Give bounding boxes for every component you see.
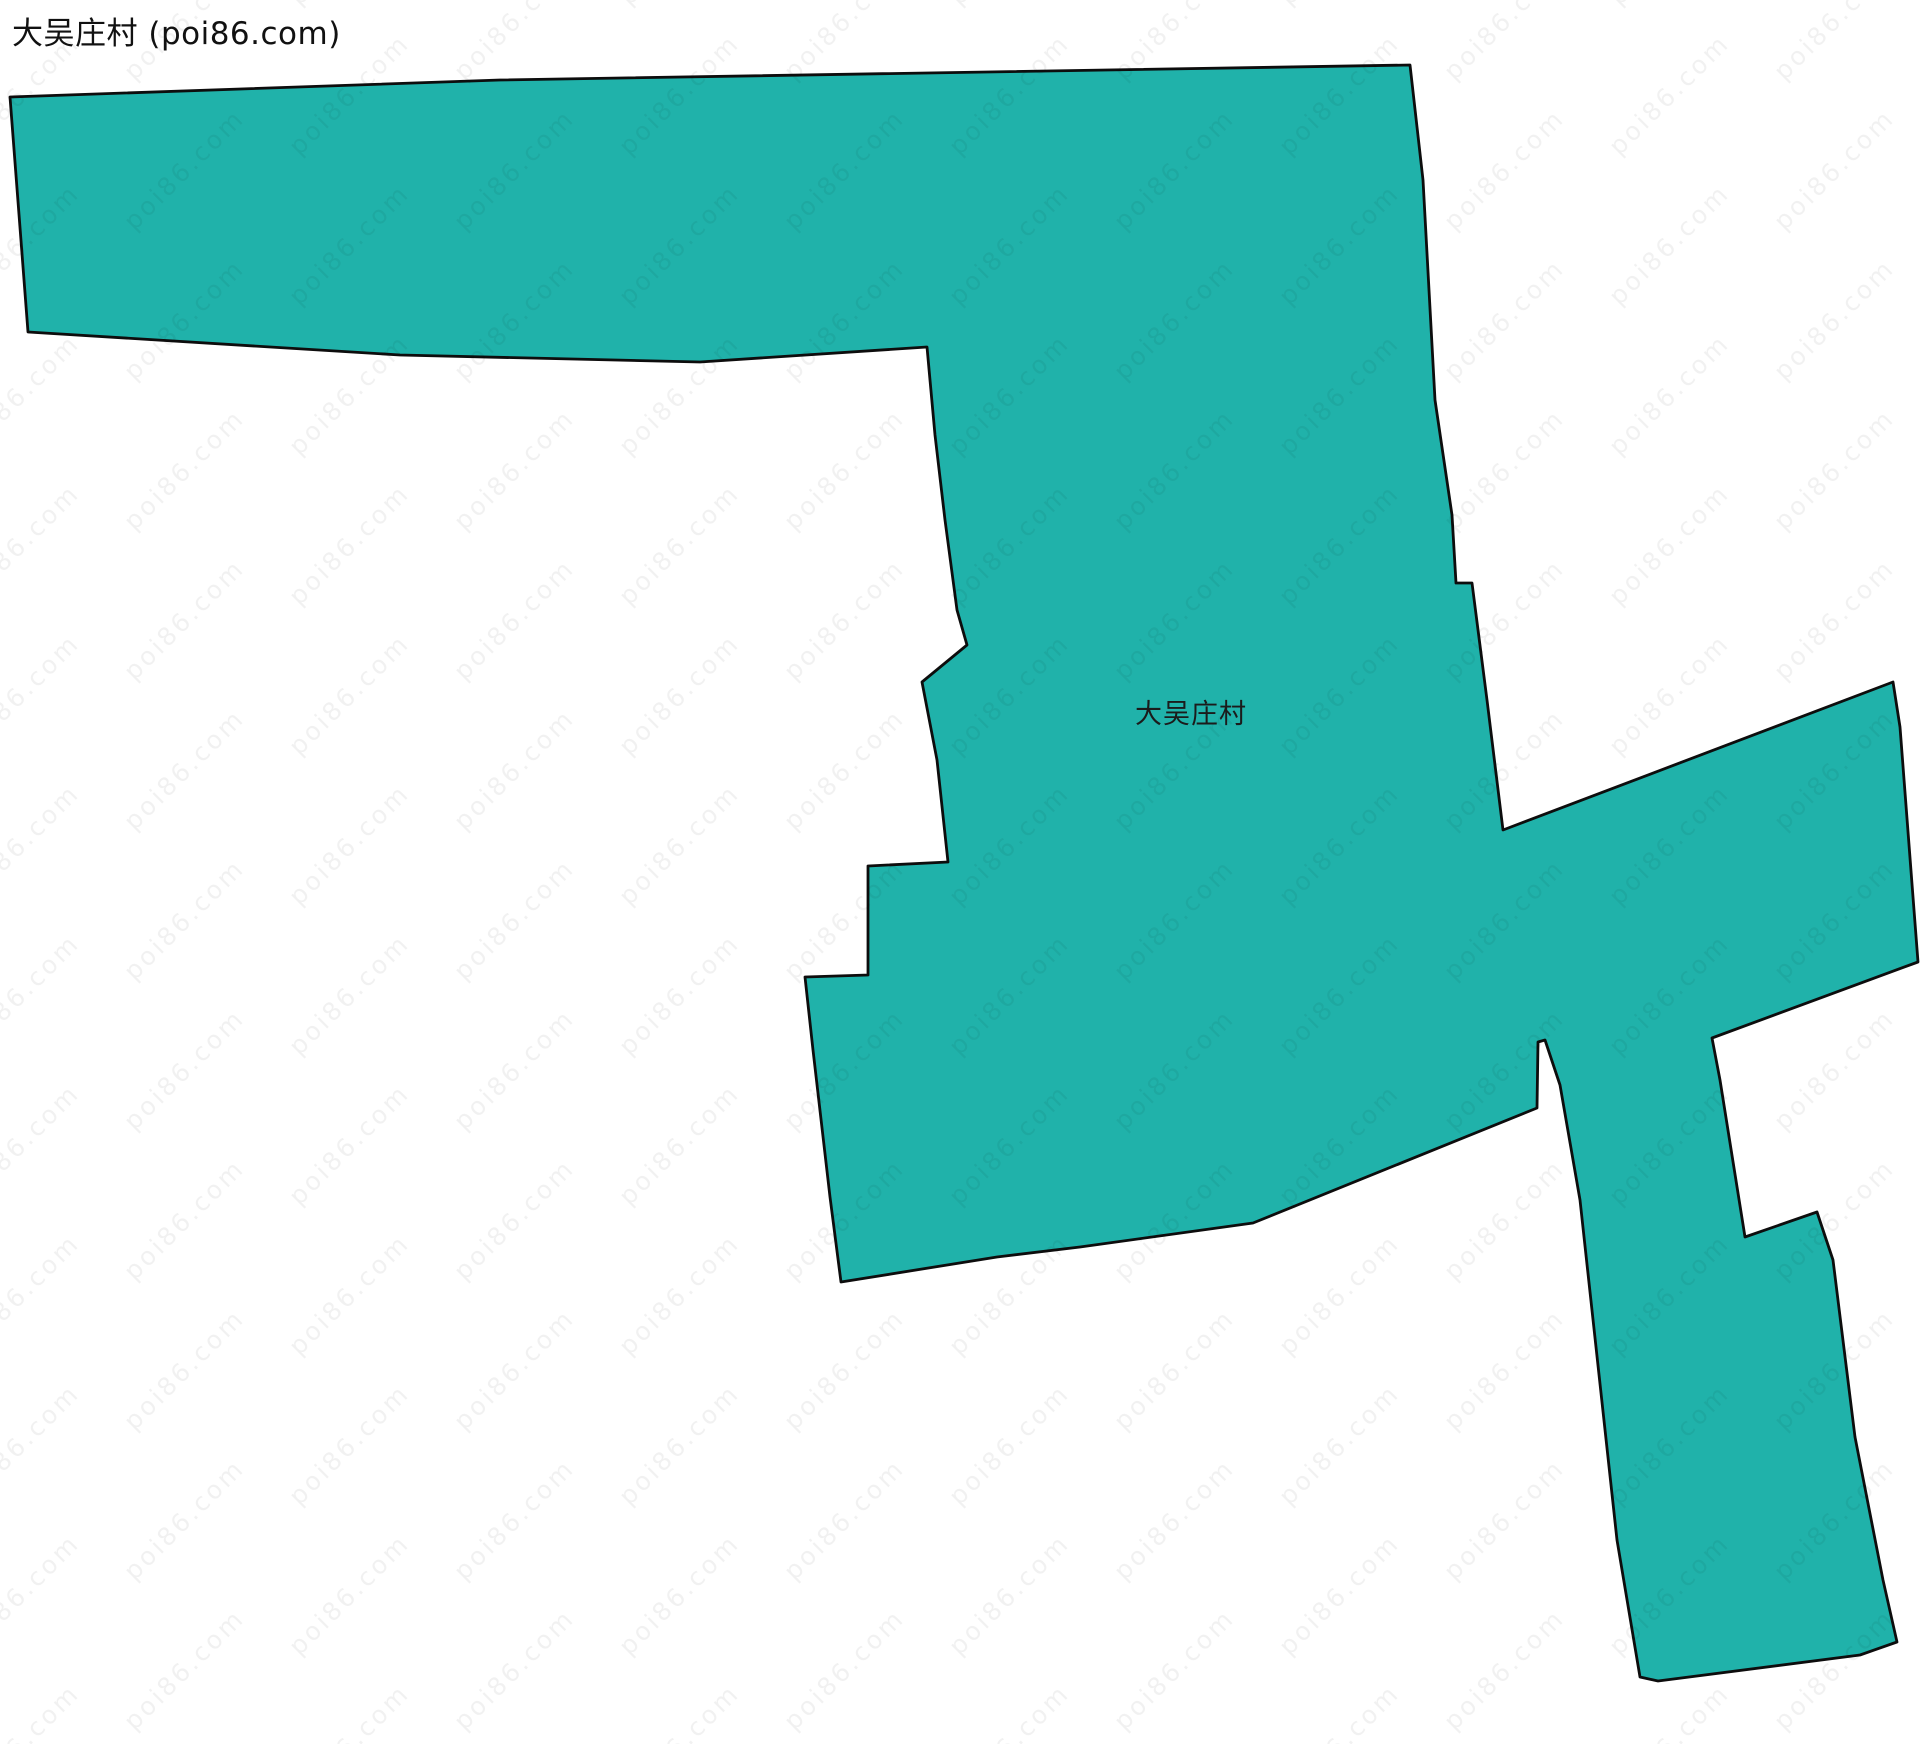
region-boundary-polygon — [10, 65, 1918, 1681]
map-canvas — [0, 0, 1920, 1744]
region-label: 大吴庄村 — [1135, 692, 1247, 731]
map-page: poi86.compoi86.compoi86.compoi86.compoi8… — [0, 0, 1920, 1744]
page-title: 大吴庄村 (poi86.com) — [12, 8, 341, 53]
